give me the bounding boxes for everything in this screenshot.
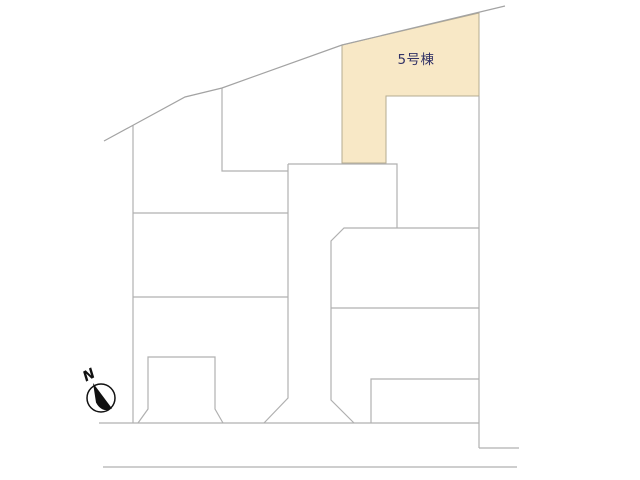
driveway-right-edge-line xyxy=(331,228,479,423)
site-plan-drawing: 5号棟 N xyxy=(0,0,640,480)
center-building-outline xyxy=(288,164,397,228)
lot-5-label: 5号棟 xyxy=(397,52,434,68)
southwest-parking-outline xyxy=(138,357,223,423)
north-compass: N xyxy=(80,366,115,412)
compass-north-label: N xyxy=(80,366,98,386)
north-lot-partition-line xyxy=(222,88,288,171)
site-plan-canvas: 5号棟 N xyxy=(0,0,640,480)
driveway-left-edge-line xyxy=(264,164,288,423)
plan-lines-layer xyxy=(99,88,519,467)
lot-5-highlight-polygon[interactable] xyxy=(342,13,479,163)
southeast-building-outline xyxy=(371,379,479,423)
